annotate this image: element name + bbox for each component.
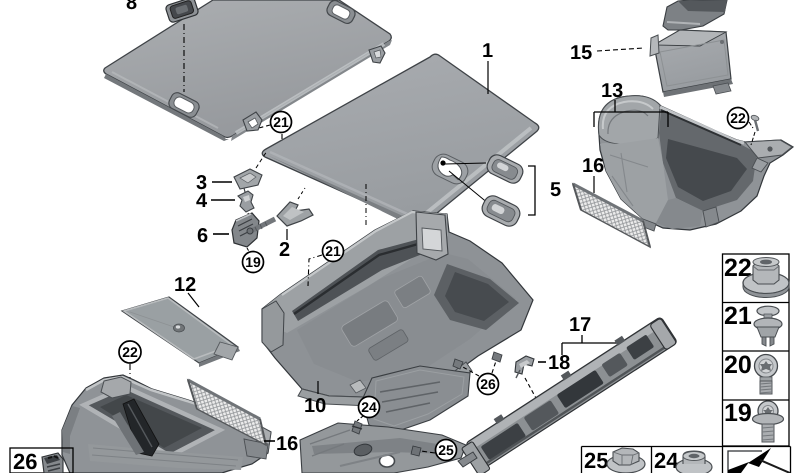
svg-text:13: 13 <box>601 80 623 102</box>
svg-text:21: 21 <box>273 114 289 130</box>
svg-text:6: 6 <box>197 225 208 247</box>
svg-text:18: 18 <box>548 352 570 374</box>
svg-text:25: 25 <box>584 448 608 473</box>
svg-text:20: 20 <box>724 351 752 379</box>
svg-text:19: 19 <box>724 399 752 427</box>
svg-text:12: 12 <box>174 274 196 296</box>
svg-text:21: 21 <box>724 302 752 330</box>
svg-text:16: 16 <box>582 155 604 177</box>
svg-text:2: 2 <box>279 239 290 261</box>
svg-text:1: 1 <box>482 40 493 62</box>
svg-text:22: 22 <box>122 344 138 360</box>
svg-text:10: 10 <box>304 395 326 417</box>
svg-text:26: 26 <box>480 376 496 392</box>
svg-text:21: 21 <box>325 243 341 259</box>
svg-text:22: 22 <box>730 110 746 126</box>
svg-text:5: 5 <box>550 179 561 201</box>
svg-text:4: 4 <box>196 190 208 212</box>
svg-text:24: 24 <box>361 399 377 415</box>
svg-text:15: 15 <box>570 42 592 64</box>
svg-text:8: 8 <box>126 0 137 14</box>
svg-text:24: 24 <box>654 448 679 473</box>
svg-text:17: 17 <box>569 314 591 336</box>
svg-text:26: 26 <box>13 449 37 473</box>
svg-text:25: 25 <box>438 442 454 458</box>
svg-text:19: 19 <box>245 254 261 270</box>
svg-text:16: 16 <box>276 433 298 455</box>
